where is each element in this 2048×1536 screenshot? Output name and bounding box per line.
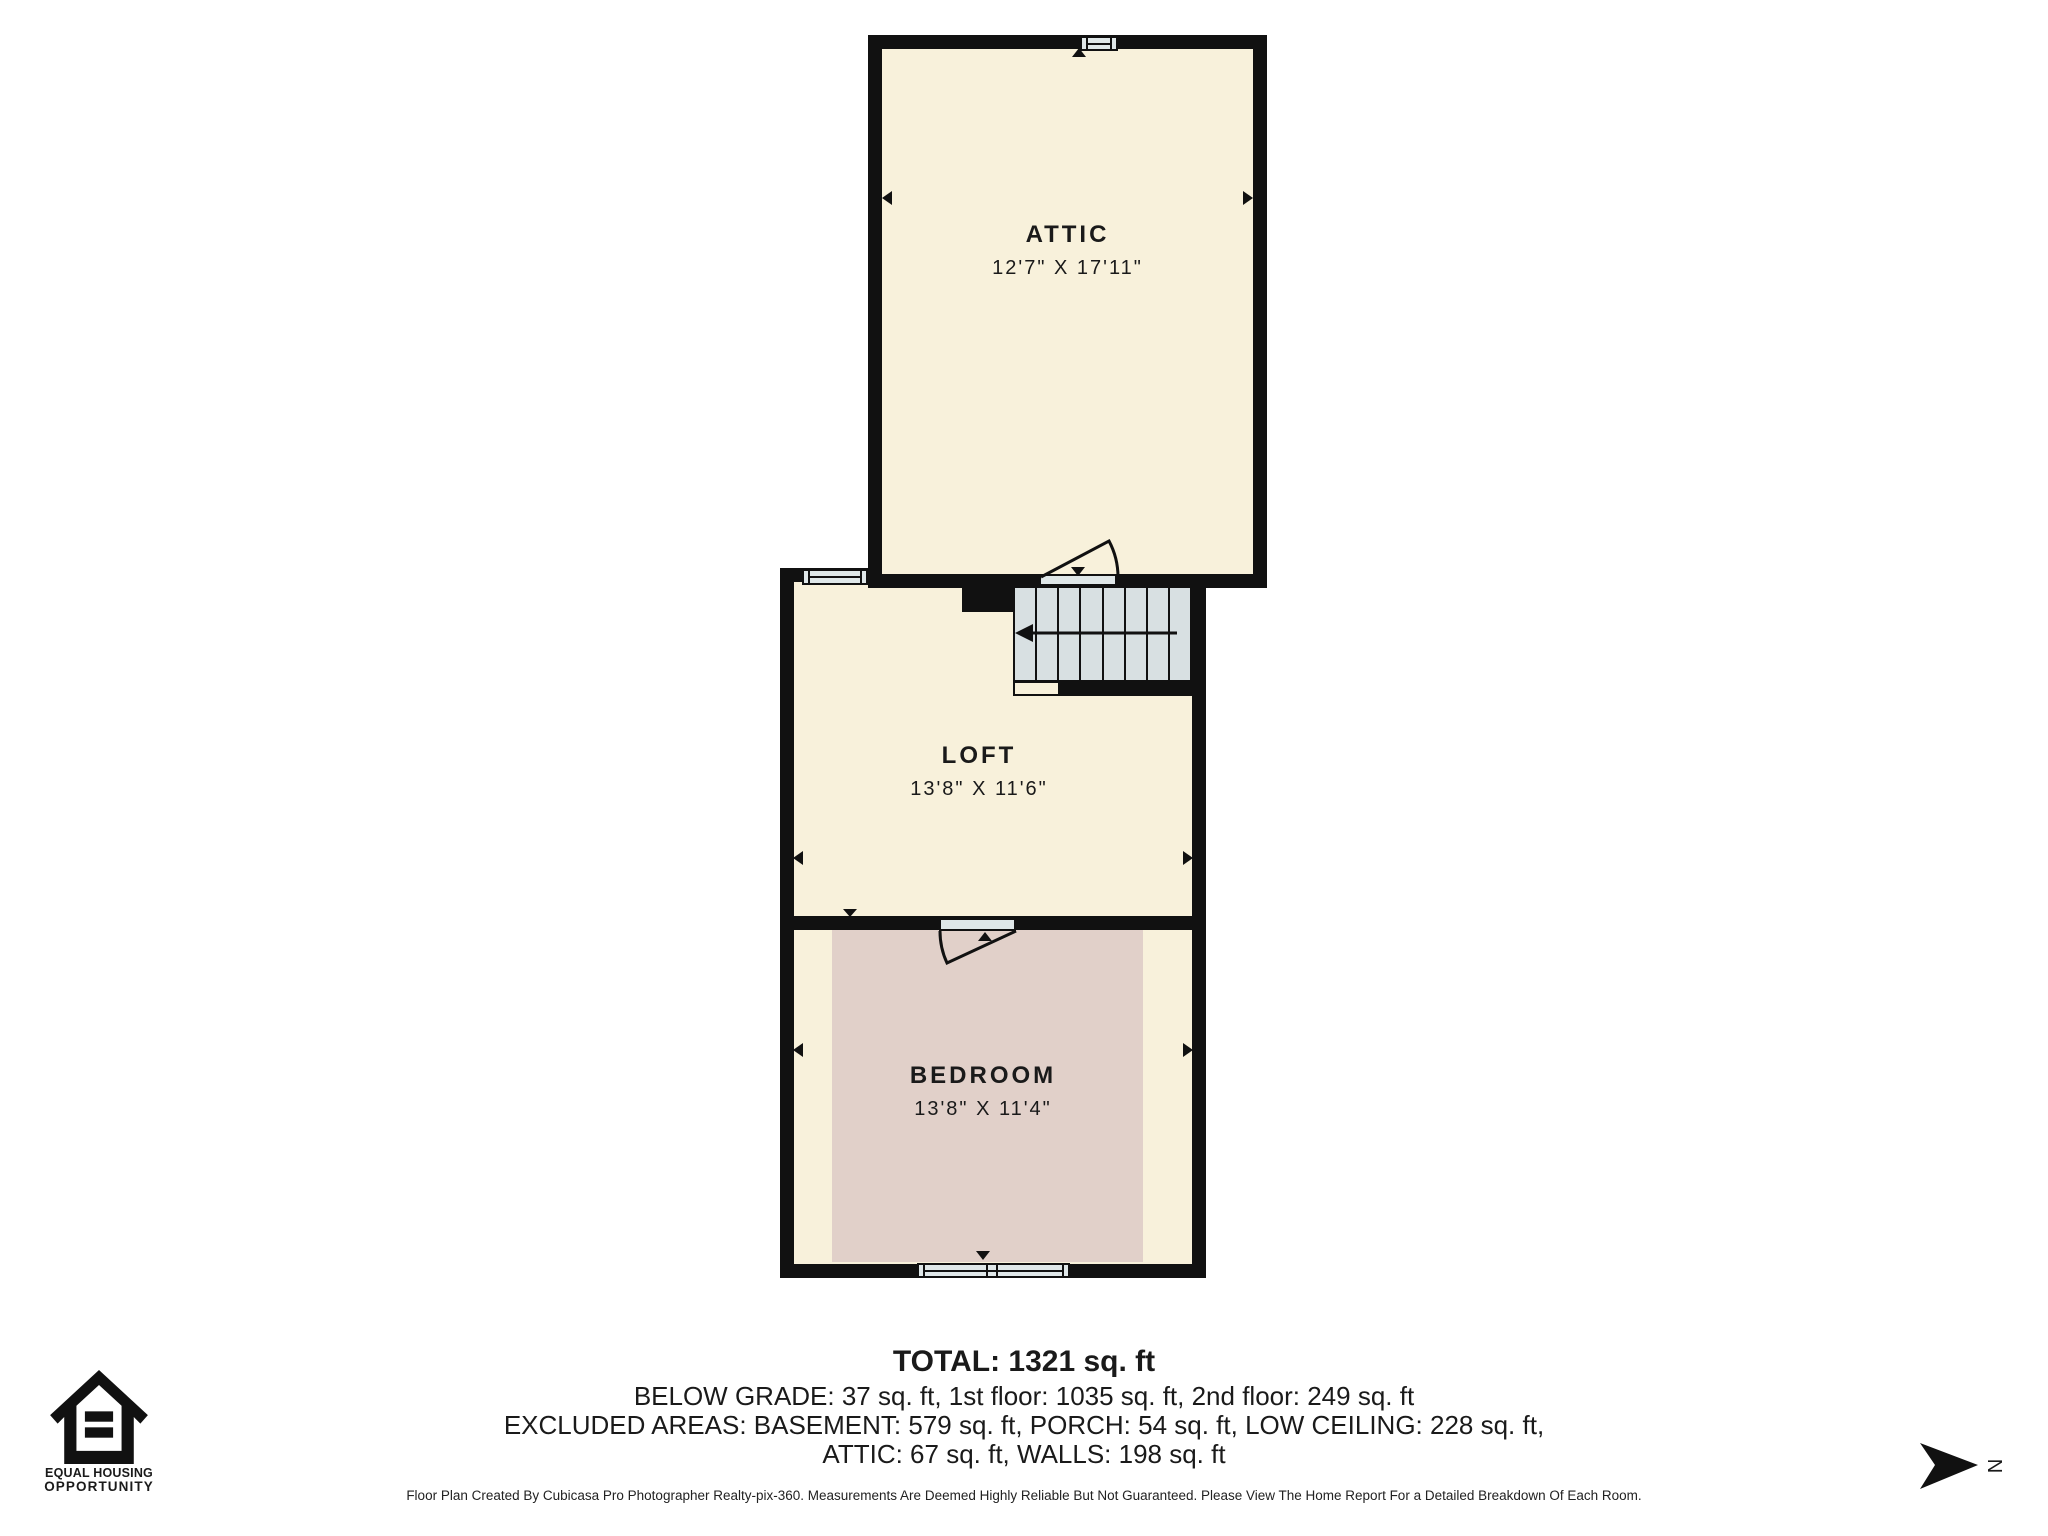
stair-opening-notch: [1015, 683, 1058, 694]
room-dimensions: 12'7" X 17'11": [882, 256, 1253, 280]
total-area-text: TOTAL: 1321 sq. ft: [0, 1346, 2048, 1378]
bedroom-double-window: [917, 1263, 1070, 1278]
attic-label: ATTIC 12'7" X 17'11": [882, 221, 1253, 280]
bedroom-door-sill: [939, 918, 1016, 931]
window-frame-cap: [1110, 37, 1112, 50]
staircase: [1013, 585, 1192, 682]
floor-areas-text: BELOW GRADE: 37 sq. ft, 1st floor: 1035 …: [0, 1381, 2048, 1411]
room-bedroom: BEDROOM 13'8" X 11'4": [780, 916, 1206, 1278]
window-frame-cap: [1086, 37, 1088, 50]
room-loft: LOFT 13'8" X 11'6": [780, 568, 1206, 930]
room-name: LOFT: [794, 742, 1164, 770]
attic-door-sill: [1039, 574, 1117, 586]
loft-label: LOFT 13'8" X 11'6": [794, 742, 1164, 801]
window-pane-divider: [809, 576, 861, 578]
attic-window: [1080, 36, 1118, 51]
north-label: N: [1983, 1455, 2005, 1477]
stairwell-wall-stub: [962, 588, 1013, 612]
room-name: ATTIC: [882, 221, 1253, 249]
window-frame-cap: [808, 570, 810, 584]
low-ceiling-area: [832, 930, 1143, 1262]
room-attic: ATTIC 12'7" X 17'11": [868, 35, 1267, 588]
window-pane-divider: [924, 1270, 1063, 1272]
excluded-areas-text: EXCLUDED AREAS: BASEMENT: 579 sq. ft, PO…: [0, 1410, 2048, 1440]
floor-plan-page: LOFT 13'8" X 11'6" BEDROOM 13'8" X 11'4"…: [0, 0, 2048, 1536]
equal-housing-logo: EQUAL HOUSING OPPORTUNITY: [29, 1370, 169, 1494]
window-center-mullion: [996, 1264, 998, 1277]
excluded-areas-text-2: ATTIC: 67 sq. ft, WALLS: 198 sq. ft: [0, 1439, 2048, 1469]
loft-window: [802, 569, 868, 585]
equal-housing-house-icon: [45, 1370, 153, 1464]
window-frame-cap: [860, 570, 862, 584]
window-center-mullion: [986, 1264, 988, 1277]
window-frame-cap: [1062, 1264, 1064, 1277]
window-frame-cap: [923, 1264, 925, 1277]
window-pane-divider: [1087, 43, 1111, 45]
room-dimensions: 13'8" X 11'6": [794, 777, 1164, 801]
eho-text-line2: OPPORTUNITY: [29, 1480, 169, 1494]
disclaimer-text: Floor Plan Created By Cubicasa Pro Photo…: [0, 1488, 2048, 1504]
